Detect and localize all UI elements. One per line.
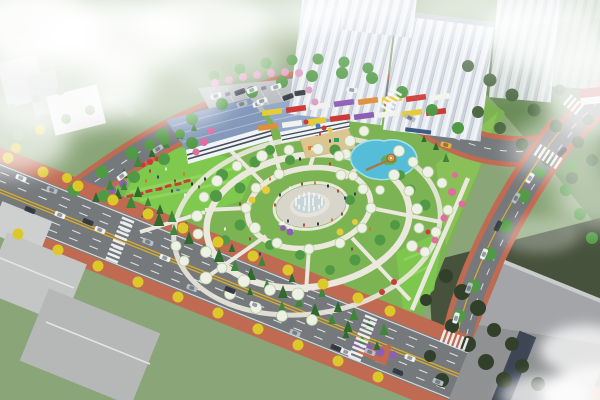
yellow-street-tree — [213, 237, 224, 248]
pedestrian — [303, 223, 305, 227]
blossom-tree — [414, 223, 424, 233]
flower-patch — [249, 197, 256, 204]
yellow-street-tree — [318, 279, 329, 290]
flower-patch — [328, 128, 333, 133]
mist-wisp — [500, 217, 580, 253]
flower-patch — [391, 279, 397, 285]
flower-patch — [193, 149, 200, 156]
flower-patch — [352, 219, 358, 225]
dark-tree — [439, 269, 453, 283]
blossom-tree — [349, 172, 358, 181]
green-tree — [186, 137, 198, 149]
flower-patch — [304, 120, 309, 125]
green-tree — [325, 265, 335, 275]
blossom-tree — [193, 229, 203, 239]
pedestrian — [314, 181, 316, 185]
green-tree — [235, 220, 246, 231]
blossom-tree — [201, 247, 212, 258]
fountain-jet — [318, 205, 320, 210]
pedestrian — [191, 182, 193, 186]
blossom-tree — [292, 288, 304, 300]
pedestrian — [287, 219, 289, 223]
fountain-jet — [321, 202, 323, 207]
blossom-tree — [307, 315, 318, 326]
green-tree — [586, 232, 598, 244]
pedestrian — [239, 202, 241, 206]
green-tree — [96, 166, 109, 179]
pedestrian — [159, 187, 161, 191]
blossom-tree — [212, 176, 223, 187]
gazebo-roof-cap — [390, 157, 392, 159]
hill-tree — [494, 122, 506, 134]
yellow-street-tree — [173, 292, 184, 303]
blossom-tree — [238, 275, 250, 287]
yellow-street-tree — [143, 209, 154, 220]
dark-tree — [487, 323, 501, 337]
green-tree — [350, 255, 361, 266]
green-tree — [375, 235, 386, 246]
yellow-street-tree — [333, 356, 344, 367]
pedestrian — [351, 247, 353, 251]
pedestrian — [331, 218, 333, 222]
dark-tree — [478, 354, 494, 370]
blossom-tree — [420, 247, 430, 257]
fountain-jet — [312, 198, 314, 203]
flower-patch — [459, 201, 466, 208]
fountain-jet — [308, 208, 310, 213]
green-tree — [390, 220, 400, 230]
flower-patch — [287, 229, 294, 236]
yellow-street-tree — [13, 229, 24, 240]
blossom-tree — [199, 192, 209, 202]
green-tree — [345, 195, 355, 205]
flower-patch — [337, 229, 344, 236]
blossom-tree — [171, 241, 181, 251]
green-tree — [295, 250, 305, 260]
rendering-canvas — [0, 0, 600, 400]
pedestrian — [259, 252, 261, 256]
blossom-tree — [179, 256, 189, 266]
pedestrian — [329, 162, 331, 166]
blossom-tree — [366, 203, 376, 213]
pedestrian — [346, 204, 348, 208]
blossom-tree — [443, 205, 453, 215]
yellow-street-tree — [253, 324, 264, 335]
flower-patch — [208, 128, 215, 135]
cloud — [180, 32, 280, 88]
blossom-tree — [200, 272, 212, 284]
blossom-tree — [357, 223, 367, 233]
flower-patch — [200, 138, 208, 146]
pedestrian — [329, 139, 331, 143]
pedestrian — [311, 147, 313, 151]
flower-patch — [176, 189, 180, 191]
pedestrian — [145, 179, 147, 183]
blossom-tree — [232, 161, 242, 171]
yellow-street-tree — [353, 293, 364, 304]
green-tree — [158, 153, 170, 165]
blossom-tree — [313, 144, 324, 155]
pedestrian — [344, 196, 346, 200]
play-equipment — [334, 138, 339, 142]
yellow-street-tree — [133, 277, 144, 288]
blossom-tree — [407, 241, 418, 252]
green-tree — [160, 135, 170, 145]
green-tree — [285, 155, 295, 165]
pedestrian — [183, 172, 185, 176]
blossom-tree — [376, 186, 385, 195]
blossom-tree — [192, 211, 203, 222]
pedestrian — [269, 177, 271, 181]
flower-patch — [441, 215, 448, 222]
blossom-tree — [437, 178, 447, 188]
yellow-street-tree — [108, 195, 119, 206]
fountain-jet — [312, 202, 314, 207]
blossom-tree — [241, 203, 251, 213]
green-tree — [126, 147, 139, 160]
blossom-tree — [335, 238, 345, 248]
fountain-jet — [295, 202, 297, 207]
flower-patch — [389, 351, 397, 359]
pedestrian — [279, 193, 281, 197]
flower-patch — [379, 289, 385, 295]
pedestrian — [174, 179, 176, 183]
flower-patch — [310, 122, 315, 127]
fountain-jet — [308, 201, 310, 206]
flower-patch — [432, 237, 439, 244]
blossom-tree — [277, 311, 288, 322]
park-aerial-rendering — [0, 0, 600, 400]
blossom-tree — [334, 151, 344, 161]
blossom-tree — [250, 223, 261, 234]
blossom-tree — [274, 169, 284, 179]
flower-patch — [147, 159, 153, 165]
dark-tree — [424, 350, 436, 362]
blossom-tree — [404, 186, 414, 196]
blossom-tree — [358, 184, 368, 194]
dark-tree — [470, 300, 486, 316]
yellow-street-tree — [213, 308, 224, 319]
blossom-tree — [265, 285, 276, 296]
fountain-jet — [313, 193, 315, 198]
pedestrian — [369, 227, 371, 231]
yellow-street-tree — [248, 251, 259, 262]
blossom-tree — [408, 157, 418, 167]
blossom-tree — [345, 136, 356, 147]
yellow-street-tree — [373, 372, 384, 383]
pedestrian — [301, 182, 303, 186]
fountain-jet — [304, 202, 306, 207]
green-tree — [452, 122, 464, 134]
blossom-tree — [257, 151, 268, 162]
pedestrian — [327, 184, 329, 188]
green-tree — [210, 190, 222, 202]
blossom-tree — [304, 244, 314, 254]
green-tree — [175, 129, 185, 139]
fountain-jet — [321, 198, 323, 203]
green-tree — [128, 171, 140, 183]
blossom-tree — [251, 183, 261, 193]
blossom-tree — [217, 263, 227, 273]
blossom-tree — [389, 170, 400, 181]
flower-patch — [262, 186, 270, 194]
pedestrian — [171, 189, 173, 193]
flower-patch — [452, 172, 458, 178]
yellow-street-tree — [53, 245, 64, 256]
yellow-street-tree — [73, 181, 84, 192]
dark-tree — [420, 294, 432, 306]
yellow-street-tree — [93, 261, 104, 272]
pedestrian — [317, 222, 319, 226]
flower-patch — [280, 225, 286, 231]
green-tree — [235, 183, 246, 194]
yellow-street-tree — [385, 306, 396, 317]
pedestrian — [157, 175, 159, 179]
yellow-street-tree — [283, 265, 294, 276]
flower-patch — [322, 126, 327, 131]
pedestrian — [249, 237, 251, 241]
blossom-tree — [272, 238, 282, 248]
flower-patch — [448, 188, 456, 196]
pedestrian — [224, 227, 226, 231]
pond — [350, 140, 416, 180]
pedestrian — [289, 186, 291, 190]
pedestrian — [341, 212, 343, 216]
pedestrian — [299, 157, 301, 161]
blossom-tree — [359, 126, 369, 136]
blossom-tree — [394, 146, 405, 157]
pedestrian — [319, 132, 321, 136]
fountain-jet — [303, 193, 305, 198]
fountain-jet — [298, 205, 300, 210]
fountain-jet — [303, 207, 305, 212]
dark-tree — [505, 337, 519, 351]
flower-patch — [426, 230, 431, 235]
blossom-tree — [423, 167, 434, 178]
dark-tree — [515, 359, 529, 373]
fountain-jet — [304, 198, 306, 203]
fountain-jet — [308, 192, 310, 197]
pedestrian — [337, 189, 339, 193]
pedestrian — [274, 203, 276, 207]
blossom-tree — [336, 170, 346, 180]
fountain-jet — [313, 207, 315, 212]
pedestrian — [184, 193, 186, 197]
pedestrian — [165, 167, 167, 171]
fountain-jet — [298, 195, 300, 200]
yellow-street-tree — [178, 223, 189, 234]
blossom-tree — [284, 145, 294, 155]
fountain-jet — [295, 198, 297, 203]
pedestrian — [354, 192, 356, 196]
pedestrian — [149, 169, 151, 173]
flower-patch — [316, 124, 321, 129]
pedestrian — [198, 185, 200, 189]
fountain-jet — [318, 195, 320, 200]
blossom-tree — [412, 204, 423, 215]
yellow-street-tree — [293, 340, 304, 351]
blossom-tree — [431, 227, 441, 237]
yellow-street-tree — [62, 173, 72, 183]
pedestrian — [204, 177, 206, 181]
